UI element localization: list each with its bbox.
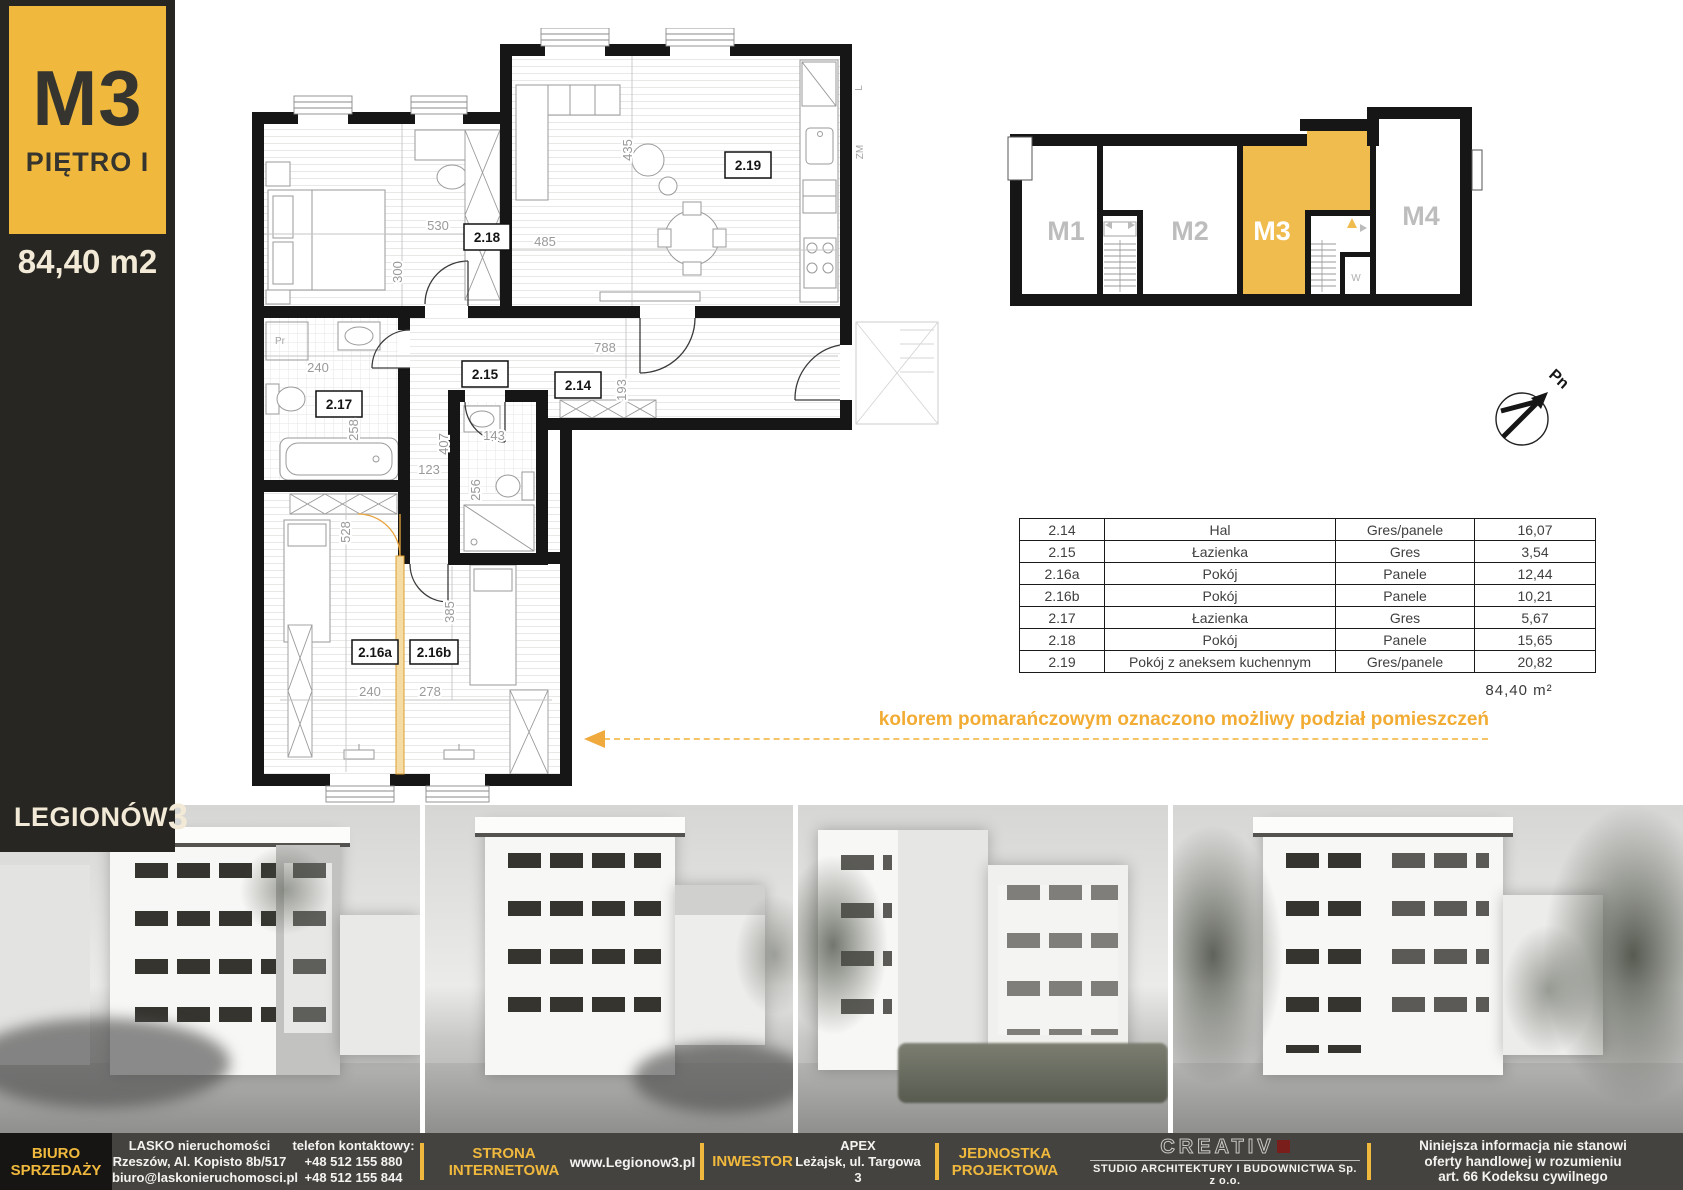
room-finish: Panele	[1336, 563, 1475, 585]
studio-logo-block: CREATIV STUDIO ARCHITEKTURY I BUDOWNICTW…	[1090, 1133, 1360, 1190]
compass: Pn	[1496, 366, 1572, 445]
room-name: Pokój	[1105, 563, 1336, 585]
design-unit-label-line: JEDNOSTKA	[943, 1145, 1067, 1162]
room-label-219: 2.19	[725, 152, 771, 178]
sales-office-label: BIURO SPRZEDAŻY	[0, 1133, 112, 1190]
dimension-label: 788	[594, 340, 616, 355]
room-no: 2.18	[1020, 629, 1105, 651]
table-row: 2.15ŁazienkaGres3,54	[1020, 541, 1596, 563]
room-name: Łazienka	[1105, 607, 1336, 629]
sales-office-line: BIURO	[32, 1145, 80, 1162]
phone-block: telefon kontaktowy: +48 512 155 880 +48 …	[287, 1133, 420, 1190]
dimension-label: 278	[419, 684, 441, 699]
table-row: 2.16aPokójPanele12,44	[1020, 563, 1596, 585]
dimension-label: 530	[427, 218, 449, 233]
partition-note: kolorem pomarańczowym oznaczono możliwy …	[879, 709, 1489, 731]
dimension-label: 240	[307, 360, 329, 375]
agency-block: LASKO nieruchomości Rzeszów, Al. Kopisto…	[112, 1133, 287, 1190]
room-no: 2.19	[1020, 651, 1105, 673]
room-no: 2.16a	[1020, 563, 1105, 585]
room-no: 2.17	[1020, 607, 1105, 629]
room-label-216a: 2.16a	[352, 640, 398, 664]
room-finish: Gres	[1336, 607, 1475, 629]
room-area: 16,07	[1475, 519, 1596, 541]
dimension-label: 385	[442, 601, 457, 623]
closet-label: Pr	[275, 336, 286, 347]
studio-logo: CREATIV	[1160, 1136, 1274, 1158]
agency-email: biuro@laskonieruchomosci.pl	[112, 1170, 287, 1186]
room-finish: Panele	[1336, 629, 1475, 651]
unit-label-m2: M2	[1171, 216, 1209, 246]
floor-label: PIĘTRO I	[26, 147, 150, 178]
room-no: 2.15	[1020, 541, 1105, 563]
footer-divider	[935, 1143, 939, 1180]
room-label-text: 2.16b	[417, 645, 452, 660]
dimension-label: 528	[338, 521, 353, 543]
balcony-notch-left	[1008, 137, 1032, 180]
compass-label: Pn	[1545, 366, 1572, 392]
room-label-218: 2.18	[464, 224, 510, 250]
dimension-label: 258	[346, 419, 361, 441]
dimension-label: 300	[390, 261, 405, 283]
dimension-label: 240	[359, 684, 381, 699]
disclaimer-line: art. 66 Kodeksu cywilnego	[1378, 1169, 1668, 1185]
investor-name: APEX	[790, 1138, 926, 1154]
table-row: 2.18PokójPanele15,65	[1020, 629, 1596, 651]
design-unit-label-line: PROJEKTOWA	[943, 1162, 1067, 1179]
investor-label-block: INWESTOR	[705, 1133, 800, 1190]
dimension-label: 485	[534, 234, 556, 249]
room-name: Pokój z aneksem kuchennym	[1105, 651, 1336, 673]
room-no: 2.16b	[1020, 585, 1105, 607]
design-unit-label-block: JEDNOSTKA PROJEKTOWA	[943, 1133, 1067, 1190]
table-total-area: 84,40 m²	[1455, 682, 1583, 699]
room-name: Hal	[1105, 519, 1336, 541]
footer-divider	[700, 1143, 704, 1180]
unit-label-m4: M4	[1402, 201, 1440, 231]
room-name: Łazienka	[1105, 541, 1336, 563]
studio-logo-rule	[1090, 1160, 1360, 1161]
dimension-label: 193	[614, 379, 629, 401]
studio-subtitle: STUDIO ARCHITEKTURY I BUDOWNICTWA Sp. z …	[1090, 1163, 1360, 1187]
room-label-text: 2.19	[735, 158, 761, 173]
dimension-label: 143	[483, 428, 505, 443]
disclaimer-line: oferty handlowej w rozumieniu	[1378, 1154, 1668, 1170]
table-row: 2.14HalGres/panele16,07	[1020, 519, 1596, 541]
room-finish: Gres	[1336, 541, 1475, 563]
footer-divider	[1367, 1143, 1371, 1180]
room-area: 20,82	[1475, 651, 1596, 673]
room-label-text: 2.18	[474, 230, 501, 245]
room-label-text: 2.16a	[358, 645, 392, 660]
website-block: www.Legionow3.pl	[565, 1133, 700, 1190]
studio-logo-square-icon	[1277, 1140, 1290, 1153]
unit-label-m1: M1	[1047, 216, 1085, 246]
investor-label: INWESTOR	[705, 1153, 800, 1170]
brand-logo: LEGIONÓW3	[14, 796, 188, 838]
footer: BIURO SPRZEDAŻY LASKO nieruchomości Rzes…	[0, 1133, 1683, 1190]
room-label-text: 2.17	[326, 397, 352, 412]
room-table: 2.14HalGres/panele16,07 2.15ŁazienkaGres…	[1019, 518, 1596, 673]
dimension-label: 256	[468, 479, 483, 501]
room-area: 10,21	[1475, 585, 1596, 607]
room-area: 15,65	[1475, 629, 1596, 651]
website-url: www.Legionow3.pl	[565, 1154, 700, 1170]
room-label-text: 2.15	[472, 367, 499, 382]
fridge-label: L	[854, 85, 865, 91]
room-no: 2.14	[1020, 519, 1105, 541]
room-label-215: 2.15	[462, 361, 508, 387]
phone-label: telefon kontaktowy:	[287, 1138, 420, 1154]
render-photo-strip	[0, 805, 1683, 1133]
investor-address: Leżajsk, ul. Targowa 3	[790, 1154, 926, 1186]
room-name: Pokój	[1105, 629, 1336, 651]
unit-badge: M3 PIĘTRO I	[9, 6, 166, 234]
room-area: 5,67	[1475, 607, 1596, 629]
table-row: 2.17ŁazienkaGres5,67	[1020, 607, 1596, 629]
room-label-217: 2.17	[316, 391, 362, 417]
table-row: 2.19Pokój z aneksem kuchennymGres/panele…	[1020, 651, 1596, 673]
investor-block: APEX Leżajsk, ul. Targowa 3	[790, 1133, 926, 1190]
room-finish: Gres/panele	[1336, 651, 1475, 673]
hedge	[898, 1043, 1168, 1103]
render-photo-2	[425, 805, 793, 1133]
unit-label-m3: M3	[1253, 216, 1291, 246]
disclaimer-line: Niniejsza informacja nie stanowi	[1378, 1138, 1668, 1154]
balcony-notch-right	[1472, 150, 1482, 190]
render-photo-4	[1173, 805, 1683, 1133]
sidebar: M3 PIĘTRO I 84,40 m2 LEGIONÓW3	[0, 0, 175, 852]
room-label-text: 2.14	[565, 378, 592, 393]
disclaimer-block: Niniejsza informacja nie stanowi oferty …	[1378, 1133, 1668, 1190]
room-finish: Panele	[1336, 585, 1475, 607]
website-label-block: STRONA INTERNETOWA	[438, 1133, 570, 1190]
stair-room-label: W	[1351, 273, 1361, 284]
brand-number: 3	[168, 796, 188, 837]
room-area: 3,54	[1475, 541, 1596, 563]
room-name: Pokój	[1105, 585, 1336, 607]
dimension-label: 435	[620, 139, 635, 161]
agency-address: Rzeszów, Al. Kopisto 8b/517	[112, 1154, 287, 1170]
total-area-label: 84,40 m2	[0, 243, 175, 281]
website-label-line: STRONA	[438, 1145, 570, 1162]
room-label-216b: 2.16b	[410, 640, 458, 664]
dimension-label: 123	[418, 462, 440, 477]
phone-number: +48 512 155 880	[287, 1154, 420, 1170]
unit-number: M3	[32, 63, 142, 133]
brand-name: LEGIONÓW	[14, 802, 168, 832]
render-photo-3	[798, 805, 1168, 1133]
dimension-label: 407	[436, 433, 451, 455]
footer-divider	[420, 1143, 424, 1180]
room-area: 12,44	[1475, 563, 1596, 585]
floor-plan: 2.18 2.19 2.15 2.14 2.17 2.16a 2.16b 530…	[240, 28, 950, 810]
website-label-line: INTERNETOWA	[438, 1162, 570, 1179]
room-label-214: 2.14	[555, 372, 601, 398]
phone-number: +48 512 155 844	[287, 1170, 420, 1186]
table-row: 2.16bPokójPanele10,21	[1020, 585, 1596, 607]
agency-name: LASKO nieruchomości	[112, 1138, 287, 1154]
dishwasher-label: ZM	[855, 145, 866, 159]
sales-office-line: SPRZEDAŻY	[11, 1162, 102, 1179]
render-photo-1	[0, 805, 420, 1133]
building-overview: M1 M2 M3 M4 W Pn	[940, 95, 1600, 475]
room-finish: Gres/panele	[1336, 519, 1475, 541]
